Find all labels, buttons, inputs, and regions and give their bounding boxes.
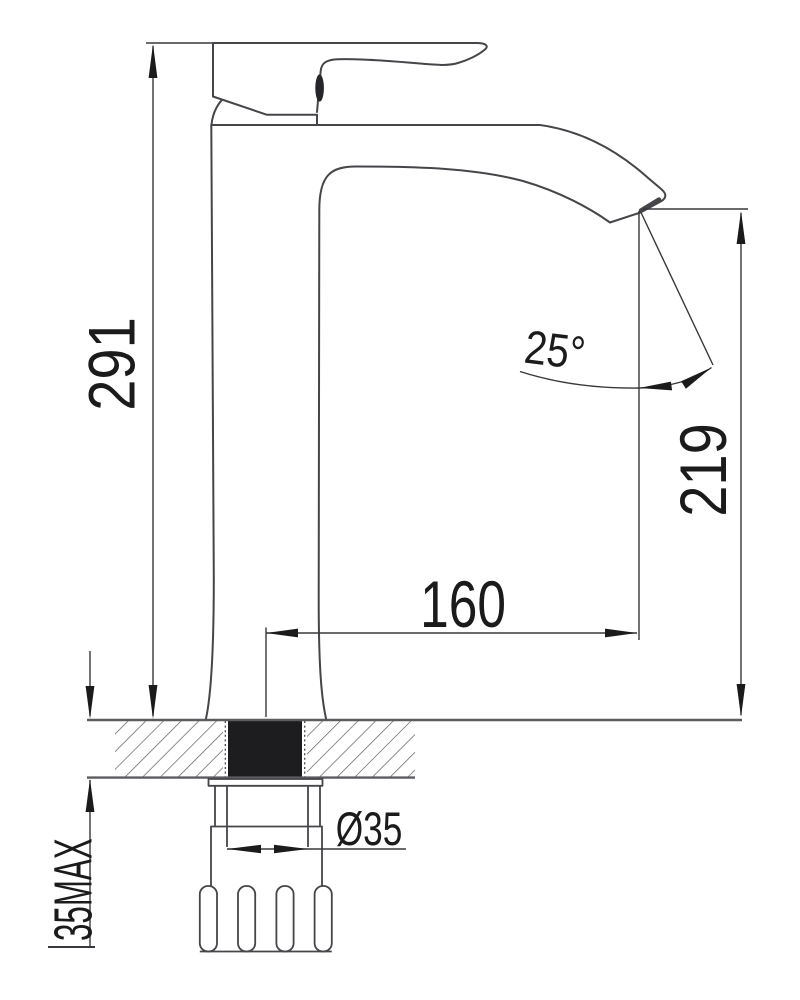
dim-outlet-angle: 25° xyxy=(520,213,713,391)
faucet-handle xyxy=(212,43,487,125)
base-flange xyxy=(209,779,323,786)
arrowhead-right-icon xyxy=(681,368,711,389)
dim-outlet-height: 219 xyxy=(643,209,748,717)
countertop-section xyxy=(87,720,742,778)
arrowhead-up-icon xyxy=(737,211,746,244)
nut-rib-4 xyxy=(315,886,332,952)
handle-base-left-curve xyxy=(212,100,223,125)
arrowhead-up-icon xyxy=(86,779,95,812)
handle-set-screw xyxy=(315,74,324,101)
under-counter-assembly xyxy=(200,779,332,952)
angle-reference-line xyxy=(641,213,713,366)
counter-hatch-left xyxy=(115,721,223,777)
dim-text-25deg: 25° xyxy=(522,322,588,381)
arrowhead-up-icon xyxy=(149,44,158,78)
dim-hole-diameter: Ø35 xyxy=(227,802,406,855)
dim-text-219: 219 xyxy=(667,423,740,517)
dim-text-160: 160 xyxy=(420,567,506,642)
dim-text-dia35: Ø35 xyxy=(336,802,403,855)
faucet-dimension-drawing: 291 219 160 25° Ø35 35MAX xyxy=(0,0,800,1000)
dim-spout-reach: 160 xyxy=(266,211,639,717)
technical-drawing-page: 291 219 160 25° Ø35 35MAX xyxy=(0,0,800,1000)
arrowhead-down-icon xyxy=(149,685,158,719)
nut-rib-1 xyxy=(200,886,217,952)
counter-hatch-right xyxy=(307,721,415,777)
dim-overall-height: 291 xyxy=(75,43,212,719)
arrowhead-down-icon xyxy=(737,684,746,717)
arrowhead-right-icon xyxy=(274,845,308,854)
nut-rib-2 xyxy=(238,886,255,952)
arrowhead-left-icon xyxy=(266,629,298,638)
arrowhead-down-icon xyxy=(86,686,95,719)
dim-deck-thickness: 35MAX xyxy=(44,651,104,947)
handle-lever-outline xyxy=(213,43,487,112)
arrowhead-left-icon xyxy=(227,845,261,854)
handle-base-outline xyxy=(213,43,317,125)
nut-rib-3 xyxy=(276,886,293,952)
dim-text-291: 291 xyxy=(75,317,148,411)
mounting-body-section xyxy=(228,721,302,777)
arrowhead-left-icon xyxy=(639,382,672,391)
dim-text-35max: 35MAX xyxy=(44,838,104,941)
arrowhead-right-icon xyxy=(605,629,637,638)
